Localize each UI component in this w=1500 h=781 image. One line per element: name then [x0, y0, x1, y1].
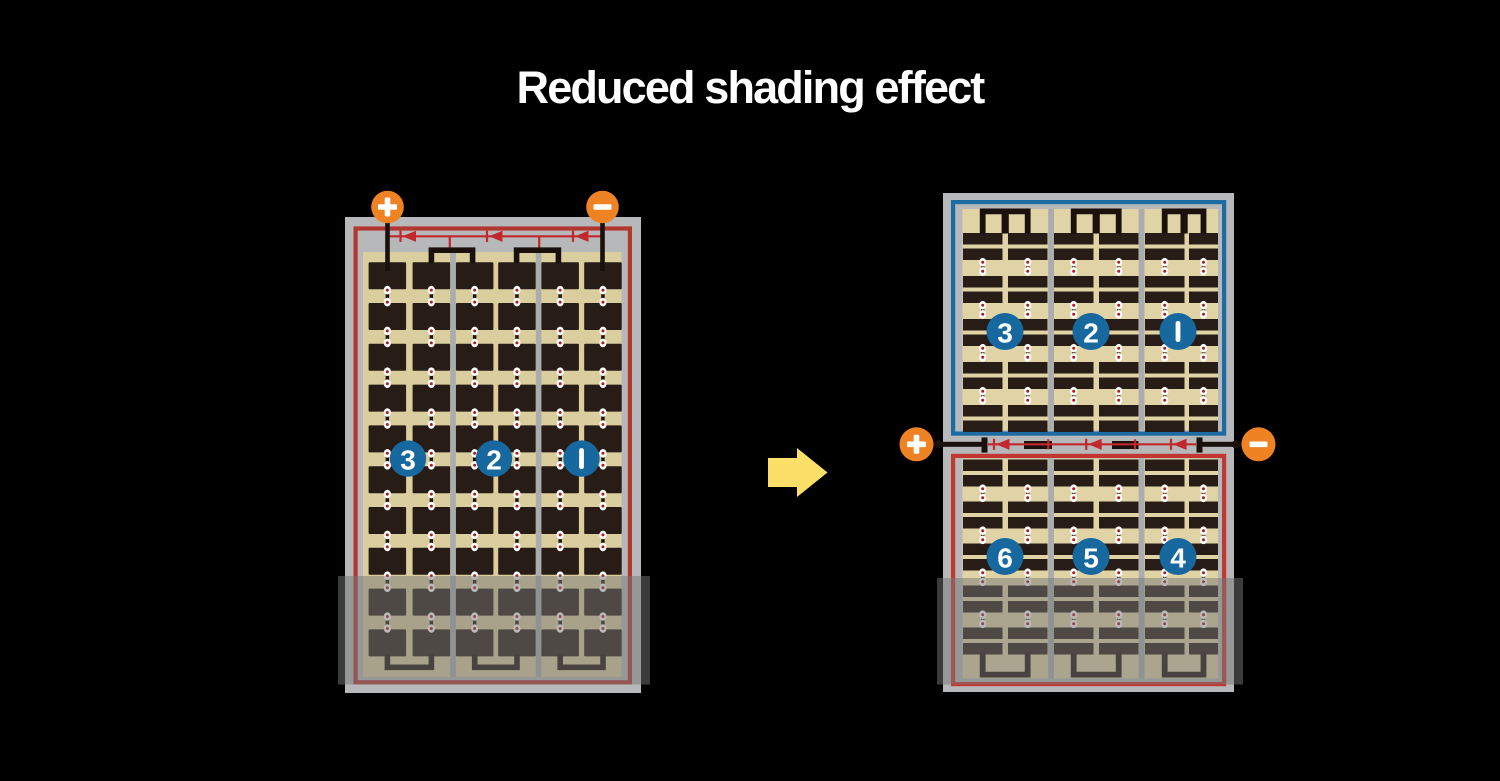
svg-text:3: 3: [997, 318, 1013, 349]
svg-text:2: 2: [1083, 318, 1099, 349]
svg-text:4: 4: [1170, 543, 1186, 574]
svg-text:3: 3: [400, 445, 416, 476]
svg-text:6: 6: [997, 543, 1013, 574]
svg-text:2: 2: [486, 445, 502, 476]
svg-text:5: 5: [1083, 543, 1099, 574]
svg-text:Reduced shading effect: Reduced shading effect: [517, 62, 986, 113]
